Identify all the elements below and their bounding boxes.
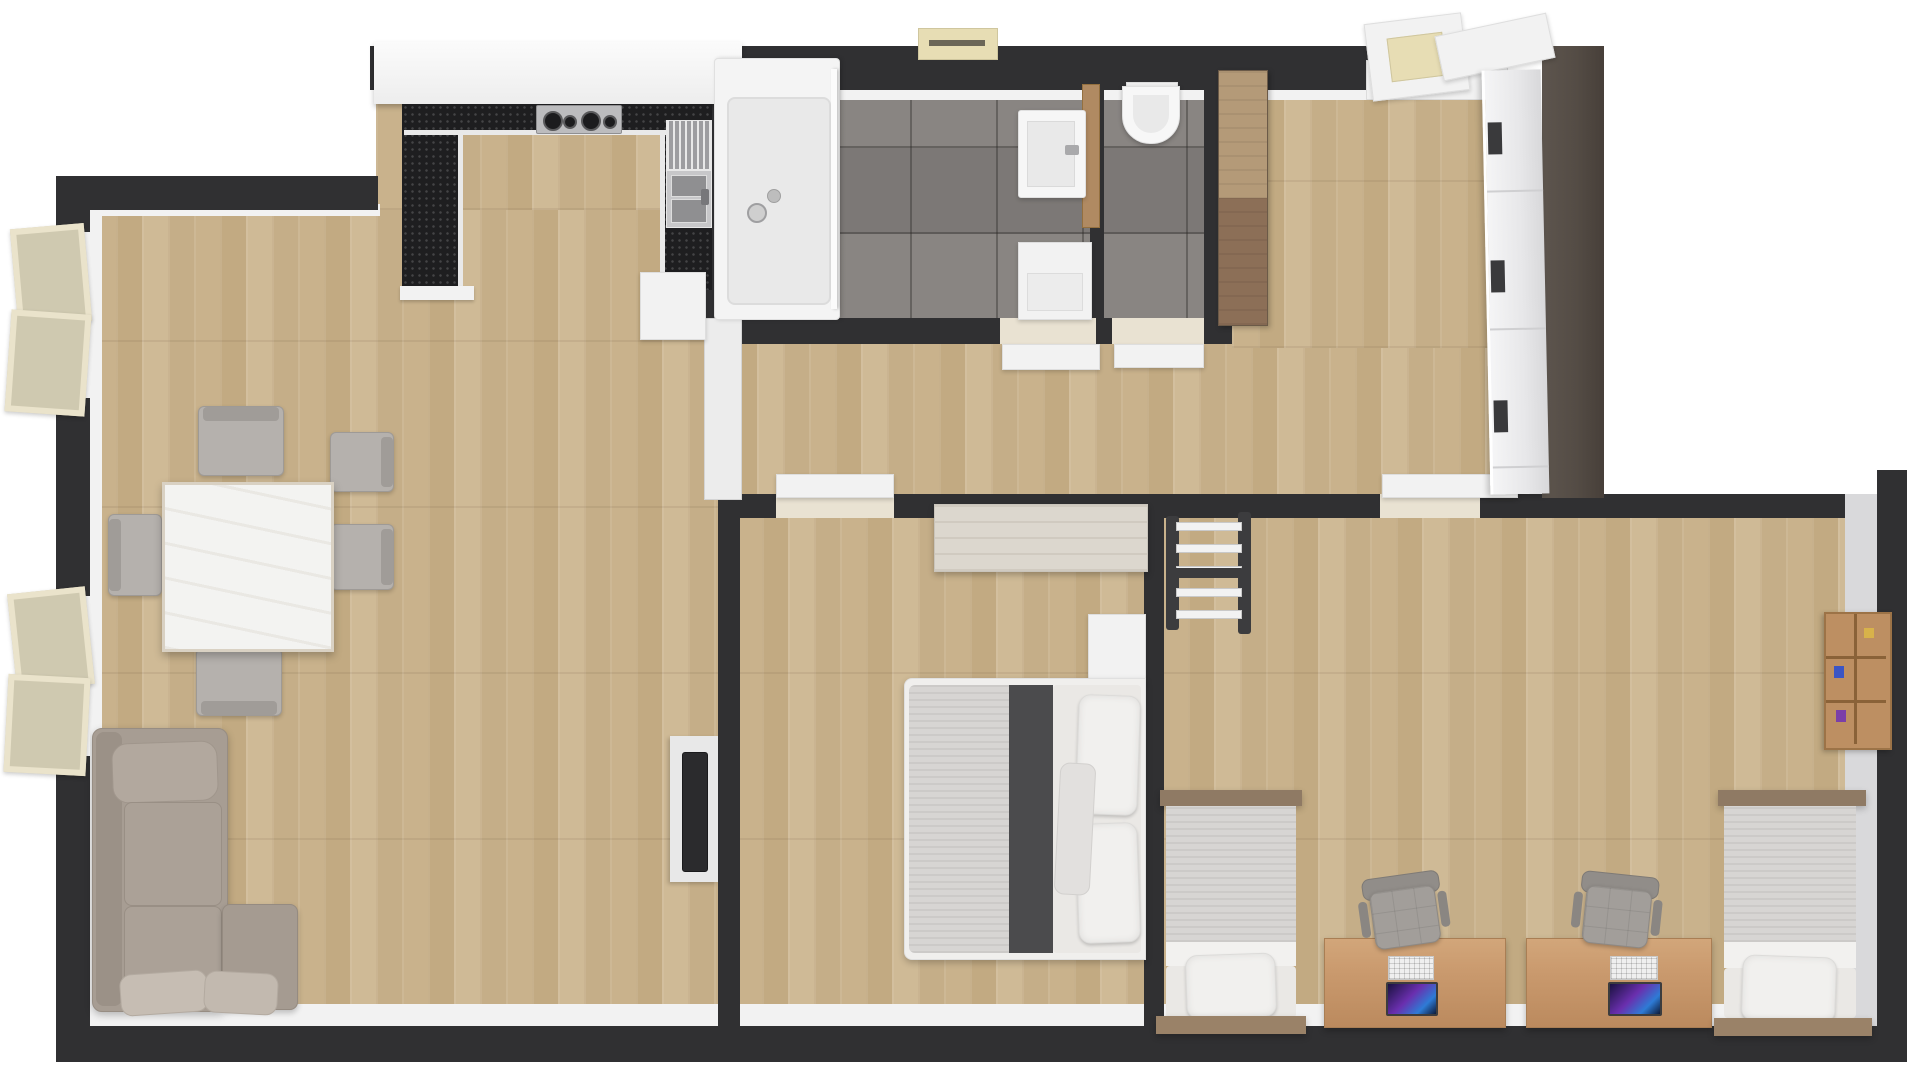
wall-bars-crossbar bbox=[1166, 568, 1244, 578]
kids-bed-2 bbox=[1718, 790, 1868, 1036]
wardrobe-shelf-line-2 bbox=[1490, 327, 1546, 330]
counter-left-endcap bbox=[400, 286, 474, 300]
wardrobe-side-panel bbox=[1542, 46, 1604, 498]
hall-living-wall-stub bbox=[704, 318, 742, 500]
window-1-sash-lower bbox=[5, 309, 92, 416]
wc-door-leaf bbox=[1114, 344, 1204, 368]
dining-table bbox=[162, 482, 334, 652]
floor-plan-render bbox=[0, 0, 1920, 1080]
counter-inner-edge-left bbox=[458, 132, 463, 290]
desk-chair-1 bbox=[1353, 868, 1462, 965]
wall-bottom bbox=[56, 1026, 1907, 1062]
bedroom-dresser bbox=[934, 504, 1148, 572]
shelf-item-yellow bbox=[1864, 628, 1874, 638]
wardrobe-handle-2 bbox=[1491, 260, 1506, 292]
dining-chair-right-1-back bbox=[381, 437, 393, 487]
dining-chair-right-2 bbox=[330, 524, 394, 590]
kids-bed-1-pillow bbox=[1185, 952, 1277, 1019]
dining-chair-left bbox=[108, 514, 162, 596]
wardrobe-handle-3 bbox=[1493, 400, 1508, 432]
burner-3 bbox=[581, 111, 601, 131]
kids-bed-1-mattress bbox=[1166, 806, 1296, 942]
sink-drainer bbox=[666, 120, 712, 170]
double-bed-mattress bbox=[909, 685, 1009, 953]
dining-chair-top-back bbox=[203, 407, 279, 421]
basin-faucet bbox=[1065, 145, 1079, 155]
kids-bed-1-footboard bbox=[1160, 790, 1302, 806]
washing-machine bbox=[1018, 242, 1092, 320]
kitchen-base-cabinet bbox=[640, 272, 706, 340]
wall-bars bbox=[1166, 512, 1252, 634]
desk-chair-2 bbox=[1566, 869, 1672, 963]
window-1 bbox=[0, 220, 96, 410]
hall-wardrobe bbox=[1482, 69, 1550, 494]
burner-1 bbox=[543, 111, 563, 131]
burner-4 bbox=[603, 115, 617, 129]
wall-bars-rung-4 bbox=[1176, 588, 1242, 597]
shower-glass bbox=[831, 69, 837, 309]
wash-basin bbox=[1018, 110, 1086, 198]
kitchen-upper-cabinets bbox=[374, 42, 742, 104]
window-2-sash-lower bbox=[3, 674, 90, 776]
wardrobe-shelf-line-1 bbox=[1487, 189, 1543, 192]
double-bed-runner bbox=[1009, 685, 1053, 953]
tv bbox=[682, 752, 708, 872]
desk-chair-2-seat bbox=[1581, 884, 1653, 949]
sofa-pillow-1 bbox=[119, 969, 210, 1017]
kitchen-sink bbox=[666, 170, 712, 228]
wall-top-left bbox=[56, 176, 378, 210]
kids-bed-2-footboard bbox=[1718, 790, 1866, 806]
entry-floor bbox=[1232, 88, 1490, 348]
bathroom-ceiling-vent bbox=[918, 28, 998, 60]
shower-head bbox=[747, 203, 767, 223]
wardrobe-shelf-line-3 bbox=[1493, 465, 1549, 468]
kids-bed-2-head-platform bbox=[1714, 1018, 1872, 1036]
shower-tray bbox=[727, 97, 831, 305]
wc-door-threshold bbox=[1112, 318, 1204, 344]
sofa-headrest bbox=[111, 740, 219, 804]
wall-bars-rung-5 bbox=[1176, 610, 1242, 619]
dining-chair-left-back bbox=[109, 519, 121, 591]
shelf-item-purple bbox=[1836, 710, 1846, 722]
kids-bed-1 bbox=[1160, 790, 1305, 1034]
shower-drain bbox=[767, 189, 781, 203]
dining-chair-right-1 bbox=[330, 432, 394, 492]
bathroom-door-threshold bbox=[1000, 318, 1096, 344]
sink-faucet bbox=[701, 189, 709, 205]
shelf-divider-v bbox=[1854, 614, 1857, 744]
dining-chair-right-2-back bbox=[381, 529, 393, 585]
bedroom-nightstand bbox=[1088, 614, 1146, 686]
shelf-item-blue bbox=[1834, 666, 1844, 678]
laptop-1-screen bbox=[1386, 982, 1438, 1016]
burner-2 bbox=[563, 115, 577, 129]
wall-bars-rung-1 bbox=[1176, 522, 1242, 531]
desk-chair-2-arm-left bbox=[1571, 891, 1584, 928]
dining-chair-bottom-back bbox=[201, 701, 277, 715]
desk-chair-1-seat bbox=[1368, 884, 1441, 951]
kids-bed-1-head-platform bbox=[1156, 1016, 1306, 1034]
dining-chair-top bbox=[198, 406, 284, 476]
vent-slot bbox=[929, 40, 985, 46]
wardrobe-handle-1 bbox=[1488, 122, 1503, 154]
bathroom-door-leaf bbox=[1002, 344, 1100, 370]
washer-lid-line bbox=[1027, 273, 1083, 311]
desk-chair-2-arm-right bbox=[1650, 900, 1663, 937]
counter-inner-edge-right bbox=[660, 132, 665, 290]
kids-bed-2-mattress bbox=[1724, 806, 1856, 942]
double-bed-cushion bbox=[1054, 762, 1097, 896]
toilet-seat bbox=[1133, 95, 1169, 133]
shower-enclosure bbox=[714, 58, 840, 320]
corner-sofa bbox=[92, 728, 296, 1010]
cooktop bbox=[536, 105, 622, 134]
hall-tall-cabinet bbox=[1218, 70, 1268, 326]
kids-bed-2-pillow bbox=[1741, 954, 1837, 1023]
sofa-pillow-2 bbox=[203, 970, 279, 1016]
window-2 bbox=[0, 584, 96, 768]
wall-bars-rung-2 bbox=[1176, 544, 1242, 553]
sofa-cushion-1 bbox=[124, 802, 222, 906]
laptop-2-screen bbox=[1608, 982, 1662, 1016]
dining-chair-bottom bbox=[196, 648, 282, 716]
kids-wall-shelf bbox=[1824, 612, 1892, 750]
toilet bbox=[1122, 86, 1180, 144]
double-bed bbox=[904, 678, 1146, 960]
bedroom-door-leaf bbox=[776, 474, 894, 498]
wall-bedroom-left bbox=[718, 494, 740, 1026]
